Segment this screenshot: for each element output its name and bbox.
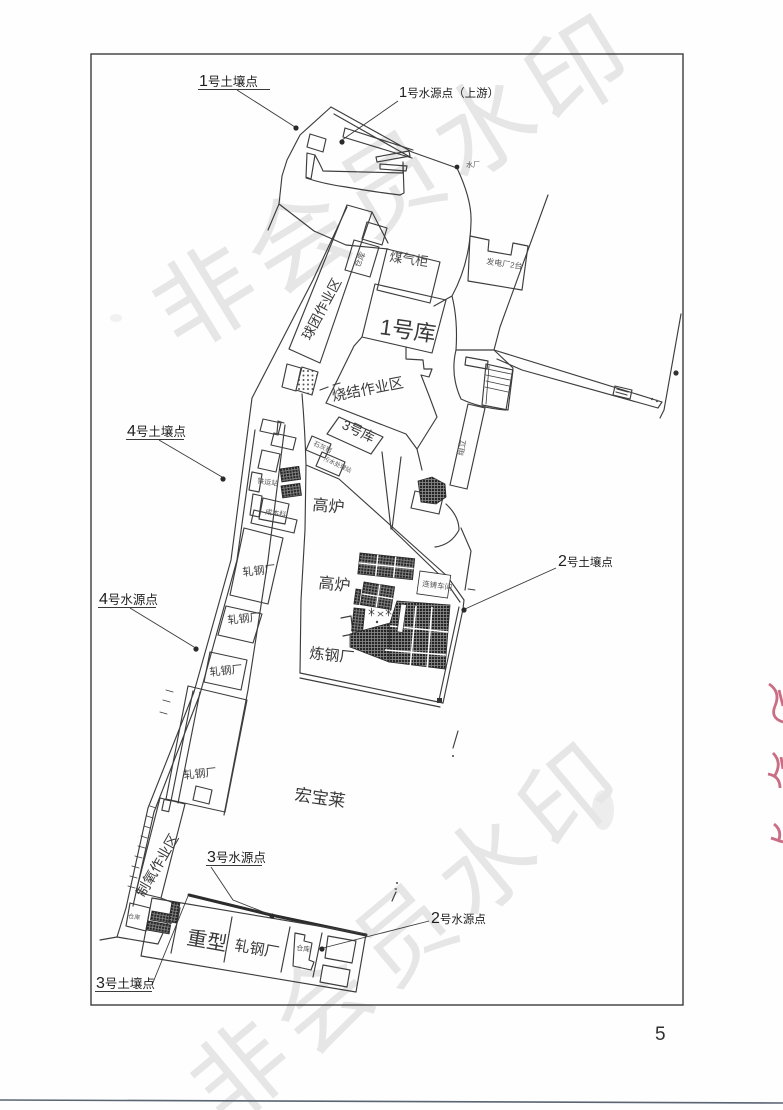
svg-text:轧钢厂: 轧钢厂 — [209, 662, 243, 679]
svg-text:2号土壤点: 2号土壤点 — [558, 553, 613, 570]
svg-text:4号土壤点: 4号土壤点 — [127, 423, 186, 440]
svg-text:重型: 重型 — [185, 926, 228, 956]
svg-text:3号库: 3号库 — [340, 417, 378, 445]
svg-text:污水处理站: 污水处理站 — [322, 455, 353, 475]
svg-text:1号水源点（上游）: 1号水源点（上游） — [399, 85, 499, 101]
svg-text:3号土壤点: 3号土壤点 — [96, 975, 155, 992]
svg-text:轧钢厂: 轧钢厂 — [242, 562, 276, 579]
svg-text:水厂: 水厂 — [466, 160, 480, 169]
svg-text:轧钢厂: 轧钢厂 — [233, 937, 280, 962]
svg-text:仓库: 仓库 — [296, 943, 311, 954]
svg-text:5: 5 — [655, 1024, 666, 1045]
svg-text:煤气柜: 煤气柜 — [389, 249, 430, 269]
svg-text:4号水源点: 4号水源点 — [99, 591, 158, 608]
svg-text:发电厂2台: 发电厂2台 — [486, 256, 523, 271]
svg-text:高炉: 高炉 — [312, 496, 345, 517]
svg-text:高炉: 高炉 — [318, 574, 352, 595]
svg-text:制氧作业区: 制氧作业区 — [133, 831, 182, 900]
svg-text:成本科: 成本科 — [265, 507, 287, 519]
svg-text:组立: 组立 — [455, 439, 468, 456]
svg-text:炼钢厂: 炼钢厂 — [309, 645, 356, 667]
svg-text:仓库: 仓库 — [128, 912, 141, 922]
svg-text:宏宝莱: 宏宝莱 — [293, 785, 346, 811]
svg-text:轧钢厂: 轧钢厂 — [183, 765, 217, 782]
svg-text:轧钢厂: 轧钢厂 — [227, 610, 261, 627]
svg-text:3号水源点: 3号水源点 — [207, 849, 266, 866]
svg-text:1号库: 1号库 — [378, 314, 437, 347]
svg-text:烧结作业区: 烧结作业区 — [331, 374, 405, 405]
svg-text:非会员水印: 非会员水印 — [171, 719, 649, 1110]
svg-text:1号土壤点: 1号土壤点 — [199, 73, 258, 90]
